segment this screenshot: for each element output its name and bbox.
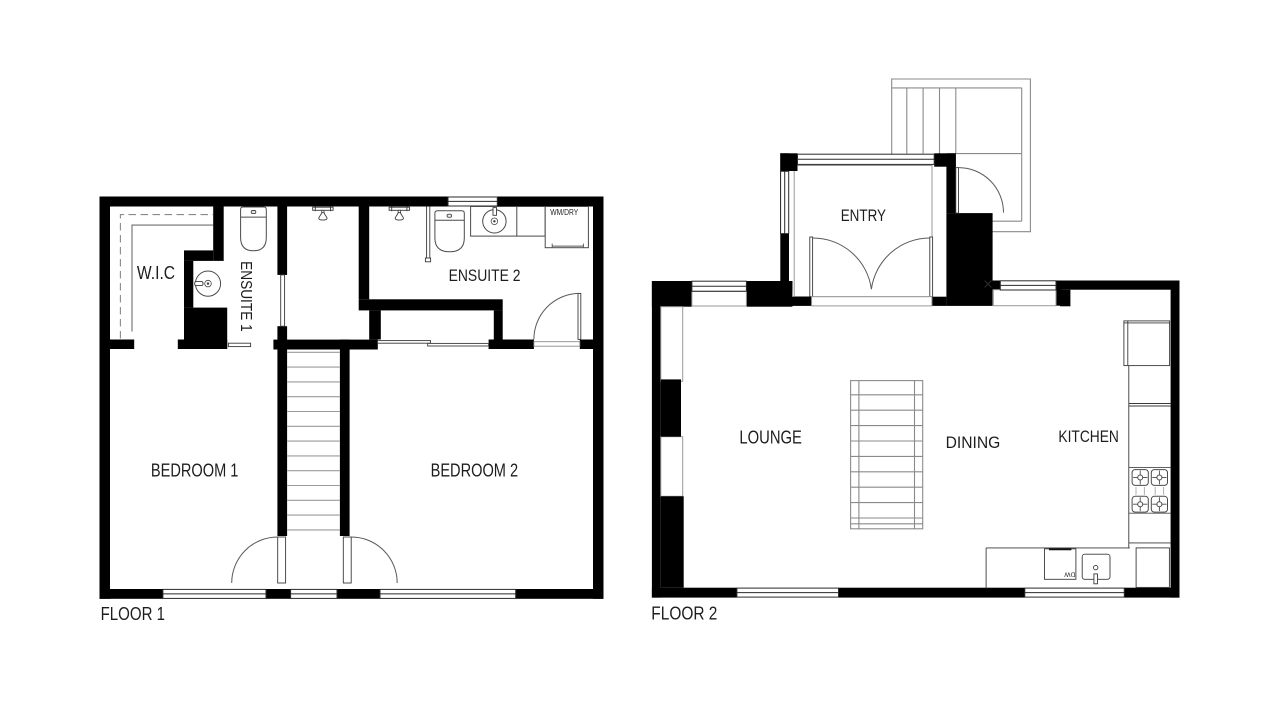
svg-text:ENSUITE 2: ENSUITE 2 (449, 266, 521, 285)
svg-text:ENSUITE 1: ENSUITE 1 (237, 261, 254, 332)
svg-text:FLOOR 1: FLOOR 1 (101, 604, 165, 624)
svg-text:W.I.C: W.I.C (137, 263, 175, 283)
svg-text:FLOOR 2: FLOOR 2 (651, 604, 717, 624)
svg-text:DINING: DINING (946, 433, 1001, 452)
svg-text:ENTRY: ENTRY (841, 206, 886, 225)
svg-text:LOUNGE: LOUNGE (739, 427, 802, 447)
svg-text:WM/DRY: WM/DRY (550, 207, 578, 217)
svg-text:BEDROOM 1: BEDROOM 1 (151, 461, 239, 481)
svg-text:KITCHEN: KITCHEN (1058, 428, 1119, 446)
svg-text:DW: DW (1064, 571, 1076, 578)
svg-text:BEDROOM 2: BEDROOM 2 (431, 461, 518, 481)
